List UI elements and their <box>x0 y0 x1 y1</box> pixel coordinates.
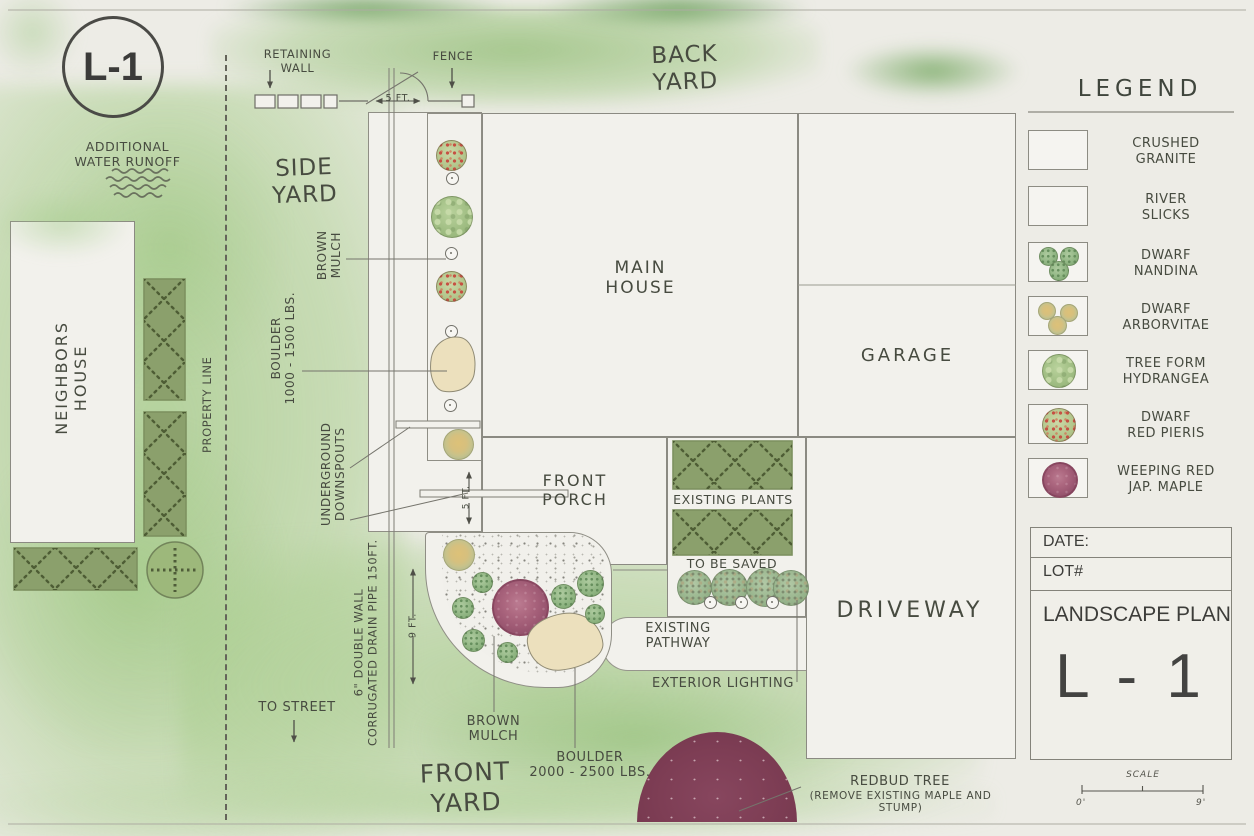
scale-start: 0' <box>1076 798 1086 808</box>
sheet-number-badge: L-1 <box>62 16 164 118</box>
drain-pipe-label: 6" DOUBLE WALL CORRUGATED DRAIN PIPE 150… <box>352 528 379 758</box>
neighbor-hedge-2 <box>143 411 187 537</box>
landscape-light <box>444 399 457 412</box>
legend-swatch-dwarf-arborvitae <box>1028 296 1088 336</box>
landscape-light <box>735 596 748 609</box>
front-yard-label: FRONT YARD <box>397 756 534 820</box>
landscape-plan-sheet: L-1 BACK YARD SIDE YARD FRONT YARD MAIN … <box>0 0 1254 836</box>
garage-label: GARAGE <box>830 345 985 366</box>
dwarf-nandina-plant <box>462 629 485 652</box>
dwarf-nandina-icon <box>1049 261 1069 281</box>
dwarf-red-pieris-icon <box>1042 408 1076 442</box>
tree-form-hydrangea-icon <box>1042 354 1076 388</box>
legend-title: LEGEND <box>1050 76 1230 102</box>
back-yard-label: BACK YARD <box>619 40 751 99</box>
title-block-date-row: DATE: <box>1031 528 1231 558</box>
neighbors-house-label: NEIGHBORS HOUSE <box>53 273 91 483</box>
landscape-light <box>445 247 458 260</box>
sheet-number-badge-text: L-1 <box>83 45 143 90</box>
legend-swatch-crushed-granite <box>1028 130 1088 170</box>
date-label: DATE: <box>1043 533 1089 550</box>
plan-title: LANDSCAPE PLAN <box>1031 591 1231 627</box>
dim-bed-width-side-text: 5 FT. <box>462 475 473 519</box>
existing-tree-circle <box>145 540 205 600</box>
tree-form-hydrangea-plant <box>431 196 473 238</box>
dwarf-red-pieris-plant <box>436 140 467 171</box>
water-runoff-waves <box>106 169 170 197</box>
legend-label-dwarf-arborvitae: DWARF ARBORVITAE <box>1096 302 1236 333</box>
redbud-note-label: (REMOVE EXISTING MAPLE AND STUMP) <box>788 790 1013 815</box>
dwarf-nandina-plant <box>497 642 518 663</box>
dwarf-nandina-plant <box>452 597 474 619</box>
legend-label-weeping-red-jap-maple: WEEPING RED JAP. MAPLE <box>1096 464 1236 495</box>
dwarf-arborvitae-plant <box>443 539 475 571</box>
landscape-light <box>766 596 779 609</box>
boulder-side-label: BOULDER 1000 - 1500 LBS. <box>269 278 297 418</box>
boulder-front-label: BOULDER 2000 - 2500 LBS. <box>520 750 660 781</box>
title-block: DATE: LOT# LANDSCAPE PLAN L - 1 <box>1030 527 1232 760</box>
retaining-wall-blocks <box>255 95 368 108</box>
property-line-label: PROPERTY LINE <box>201 345 215 465</box>
dwarf-red-pieris-plant <box>436 271 467 302</box>
sheet-number-large: L - 1 <box>1031 641 1231 712</box>
fence-line <box>428 95 474 107</box>
dwarf-arborvitae-icon <box>1048 316 1067 335</box>
legend-swatch-dwarf-red-pieris <box>1028 404 1088 444</box>
additional-runoff-label: ADDITIONAL WATER RUNOFF <box>45 140 210 170</box>
dwarf-nandina-plant <box>551 584 576 609</box>
landscape-light <box>704 596 717 609</box>
neighbor-hedge-3 <box>13 547 138 591</box>
title-block-lot-row: LOT# <box>1031 558 1231 591</box>
main-house-label: MAIN HOUSE <box>563 258 718 298</box>
dwarf-nandina-plant <box>472 572 493 593</box>
exterior-lighting-label: EXTERIOR LIGHTING <box>648 676 798 691</box>
brown-mulch-front-label: BROWN MULCH <box>446 714 541 745</box>
dwarf-nandina-plant <box>585 604 605 624</box>
redbud-tree-label: REDBUD TREE <box>820 774 980 789</box>
lot-label: LOT# <box>1043 563 1083 580</box>
weeping-red-jap-maple-icon <box>1042 462 1078 498</box>
garage-outline <box>798 113 1016 437</box>
legend-label-dwarf-nandina: DWARF NANDINA <box>1096 248 1236 279</box>
property-line <box>225 55 227 820</box>
legend-swatch-dwarf-nandina <box>1028 242 1088 282</box>
existing-plants-hedge-1 <box>672 440 793 490</box>
scale-end: 9' <box>1196 798 1206 808</box>
legend-swatch-tree-form-hydrangea <box>1028 350 1088 390</box>
brown-mulch-side-label: BROWN MULCH <box>315 200 343 310</box>
existing-plants-label: EXISTING PLANTS <box>663 493 803 508</box>
to-street-label: TO STREET <box>252 700 342 715</box>
legend-swatch-weeping-red-jap-maple <box>1028 458 1088 498</box>
dwarf-arborvitae-plant <box>443 429 474 460</box>
redbud-tree <box>637 732 797 822</box>
legend-label-crushed-granite: CRUSHED GRANITE <box>1096 136 1236 167</box>
dim-wall-offset-text: 5 FT. <box>376 93 420 104</box>
wash-top-streak-left <box>222 0 507 24</box>
dim-bed-width-front-text: 9 FT. <box>407 598 418 654</box>
wash-top-streak-right <box>545 0 810 28</box>
to-be-saved-label: TO BE SAVED <box>672 557 792 572</box>
underground-downspouts-label: UNDERGROUND DOWNSPOUTS <box>319 399 347 549</box>
front-porch-label: FRONT PORCH <box>500 472 650 510</box>
existing-pathway-label: EXISTING PATHWAY <box>618 621 738 652</box>
fence-label: FENCE <box>428 50 478 64</box>
legend-label-river-slicks: RIVER SLICKS <box>1096 192 1236 223</box>
retaining-wall-label: RETAINING WALL <box>250 48 345 75</box>
driveway-label: DRIVEWAY <box>820 598 1000 624</box>
existing-plants-hedge-2 <box>672 509 793 556</box>
landscape-light <box>446 172 459 185</box>
neighbor-hedge-1 <box>143 278 186 401</box>
legend-label-tree-form-hydrangea: TREE FORM HYDRANGEA <box>1096 356 1236 387</box>
scale-bar <box>1082 785 1203 794</box>
wash-top-right-blob <box>845 44 1020 98</box>
scale-label: SCALE <box>1118 770 1168 780</box>
legend-label-dwarf-red-pieris: DWARF RED PIERIS <box>1096 410 1236 441</box>
dwarf-nandina-plant <box>577 570 604 597</box>
legend-swatch-river-slicks <box>1028 186 1088 226</box>
